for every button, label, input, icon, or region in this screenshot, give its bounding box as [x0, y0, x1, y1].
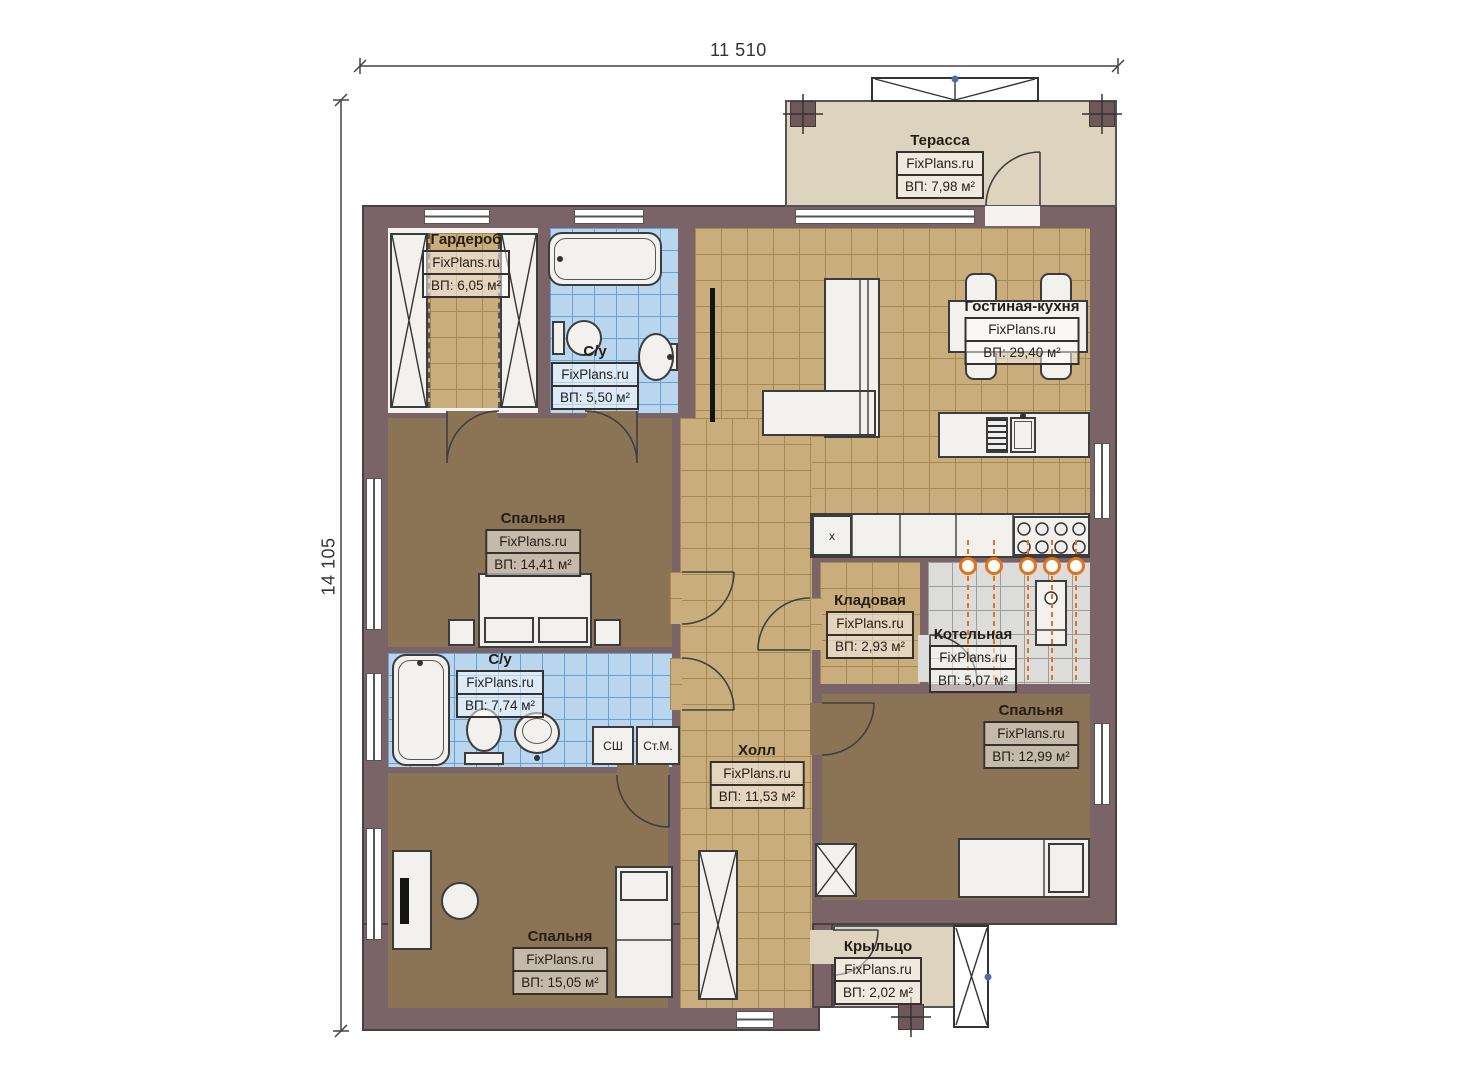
room-name: Холл [710, 742, 805, 759]
room-area: ВП: 15,05 м² [512, 970, 608, 995]
label-bedroom-left: Спальня FixPlans.ru ВП: 14,41 м² [485, 510, 581, 577]
window-bedroom-right [1094, 723, 1110, 805]
door-gap-bedroom-bottom [617, 765, 669, 775]
room-name: С/у [551, 343, 639, 360]
bathtub-mid-inner [398, 660, 444, 760]
brand-watermark: FixPlans.ru [551, 362, 639, 387]
bed-bottom-pillow [620, 871, 668, 901]
label-boiler-room: Котельная FixPlans.ru ВП: 5,07 м² [929, 626, 1017, 693]
brand-watermark: FixPlans.ru [929, 645, 1017, 670]
label-wardrobe: Гардероб FixPlans.ru ВП: 6,05 м² [422, 231, 510, 298]
washing-machine: Ст.М. [636, 726, 680, 765]
floor-plan-canvas: 11 510 14 105 [0, 0, 1473, 1080]
entrance-door-gap [810, 930, 835, 964]
brand-watermark: FixPlans.ru [826, 611, 914, 636]
room-name: Кладовая [826, 592, 914, 609]
room-name: С/у [456, 651, 544, 668]
window-living-right [1094, 443, 1110, 519]
room-area: ВП: 7,98 м² [896, 174, 984, 199]
label-bedroom-bottom: Спальня FixPlans.ru ВП: 15,05 м² [512, 928, 608, 995]
door-gap-bathroom-top [587, 411, 637, 420]
sink-mid-basin [522, 718, 552, 744]
room-area: ВП: 2,02 м² [834, 980, 922, 1005]
door-gap-wardrobe [447, 411, 497, 420]
door-gap-bedroom-right [810, 703, 824, 755]
label-pantry: Кладовая FixPlans.ru ВП: 2,93 м² [826, 592, 914, 659]
terrace-door-gap [985, 206, 1040, 226]
dryer-closet-label: СШ [603, 739, 623, 753]
room-name: Крыльцо [834, 938, 922, 955]
stove [1013, 516, 1090, 556]
terrace-canopy [871, 77, 1039, 102]
room-name: Спальня [512, 928, 608, 945]
window-hall-bottom [736, 1011, 774, 1028]
room-name: Гостиная-кухня [965, 298, 1080, 315]
room-area: ВП: 14,41 м² [485, 552, 581, 577]
sink-top [638, 333, 674, 381]
room-area: ВП: 29,40 м² [965, 340, 1080, 365]
label-terrace: Терасса FixPlans.ru ВП: 7,98 м² [896, 132, 984, 199]
room-name: Спальня [983, 702, 1079, 719]
room-name: Терасса [896, 132, 984, 149]
brand-watermark: FixPlans.ru [834, 957, 922, 982]
room-area: ВП: 5,07 м² [929, 668, 1017, 693]
label-hall: Холл FixPlans.ru ВП: 11,53 м² [710, 742, 805, 809]
brand-watermark: FixPlans.ru [965, 317, 1080, 342]
nightstand-left-2 [594, 619, 621, 646]
window-wardrobe [424, 209, 490, 224]
room-area: ВП: 2,93 м² [826, 634, 914, 659]
kitchen-unit-x: x [812, 515, 852, 556]
bed-left-pillow-2 [538, 617, 588, 643]
window-bathroom-top [574, 209, 644, 224]
dryer-closet: СШ [592, 726, 634, 765]
bed-left-pillow-1 [484, 617, 534, 643]
window-living-terrace [795, 209, 975, 224]
dish-rack [986, 417, 1008, 453]
window-bathroom-mid [366, 673, 382, 761]
door-gap-pantry [810, 598, 822, 650]
brand-watermark: FixPlans.ru [896, 151, 984, 176]
porch-post [898, 1004, 924, 1030]
label-bathroom-top: С/у FixPlans.ru ВП: 5,50 м² [551, 343, 639, 410]
sofa-seat [762, 390, 876, 436]
door-gap-bedroom-left [670, 572, 682, 624]
room-area: ВП: 7,74 м² [456, 693, 544, 718]
brand-watermark: FixPlans.ru [983, 721, 1079, 746]
room-name: Спальня [485, 510, 581, 527]
tv [710, 288, 715, 422]
dimension-width-label: 11 510 [710, 40, 767, 61]
room-area: ВП: 11,53 м² [710, 784, 805, 809]
terrace-post-left [790, 101, 816, 127]
bathtub-top-inner [554, 238, 656, 280]
nightstand-left-1 [448, 619, 475, 646]
brand-watermark: FixPlans.ru [456, 670, 544, 695]
room-area: ВП: 12,99 м² [983, 744, 1079, 769]
window-bedroom-bottom [366, 828, 382, 940]
bed-right-pillow [1048, 843, 1084, 893]
bedroom-right-closet [815, 843, 857, 897]
brand-watermark: FixPlans.ru [422, 250, 510, 275]
toilet-mid-tank [464, 752, 504, 765]
office-chair [441, 882, 479, 920]
brand-watermark: FixPlans.ru [710, 761, 805, 786]
dimension-height-label: 14 105 [319, 537, 340, 595]
island-sink-basin [1014, 421, 1032, 449]
label-bathroom-mid: С/у FixPlans.ru ВП: 7,74 м² [456, 651, 544, 718]
room-area: ВП: 6,05 м² [422, 273, 510, 298]
desk [392, 850, 432, 950]
window-bedroom-left [366, 478, 382, 630]
terrace-post-right [1089, 101, 1115, 127]
room-area: ВП: 5,50 м² [551, 385, 639, 410]
label-living-kitchen: Гостиная-кухня FixPlans.ru ВП: 29,40 м² [965, 298, 1080, 365]
brand-watermark: FixPlans.ru [485, 529, 581, 554]
desk-monitor [400, 878, 409, 924]
label-bedroom-right: Спальня FixPlans.ru ВП: 12,99 м² [983, 702, 1079, 769]
room-name: Гардероб [422, 231, 510, 248]
porch-canopy [953, 925, 989, 1028]
room-name: Котельная [929, 626, 1017, 643]
washing-machine-label: Ст.М. [643, 739, 673, 753]
label-porch: Крыльцо FixPlans.ru ВП: 2,02 м² [834, 938, 922, 1005]
kitchen-unit-x-label: x [829, 529, 835, 543]
brand-watermark: FixPlans.ru [512, 947, 608, 972]
boiler-unit [1035, 580, 1067, 646]
hall-closet-left [698, 850, 738, 1000]
door-gap-bathroom-mid [670, 658, 682, 710]
